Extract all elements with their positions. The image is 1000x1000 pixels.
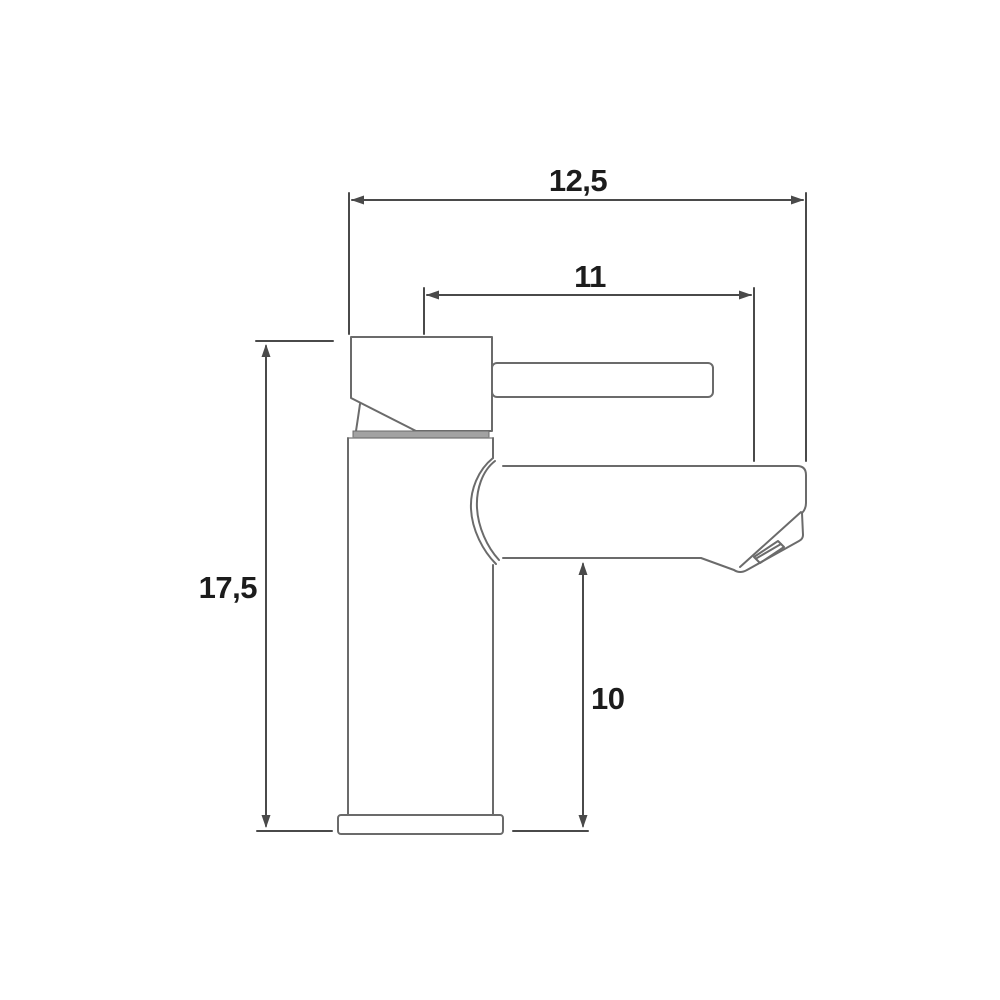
faucet-base-fill: [338, 815, 503, 834]
arrowhead-left: [426, 291, 439, 300]
arrowhead-top: [262, 344, 271, 357]
dimension-label-overall-width: 12,5: [549, 163, 608, 198]
arrowhead-bottom: [579, 815, 588, 828]
dimension-label-spout-height: 10: [591, 681, 624, 716]
faucet-dimension-diagram: 12,5 11 17,5 10: [0, 0, 1000, 1000]
faucet-head-cut-detail: [356, 404, 360, 431]
faucet-collar: [353, 431, 489, 438]
dimension-overall-height: 17,5: [199, 341, 333, 831]
arrowhead-left: [351, 196, 364, 205]
arrowhead-top: [579, 562, 588, 575]
arrowhead-bottom: [262, 815, 271, 828]
faucet-head-fill: [351, 337, 492, 431]
technical-drawing-canvas: 12,5 11 17,5 10: [0, 0, 1000, 1000]
arrowhead-right: [791, 196, 804, 205]
faucet-drawing: [338, 337, 806, 834]
dimension-label-overall-height: 17,5: [199, 570, 258, 605]
faucet-fills: [338, 337, 806, 834]
arrowhead-right: [739, 291, 752, 300]
dimension-label-spout-reach: 11: [574, 259, 606, 294]
faucet-lever-fill: [492, 363, 713, 397]
dimension-spout-height: 10: [513, 562, 624, 831]
